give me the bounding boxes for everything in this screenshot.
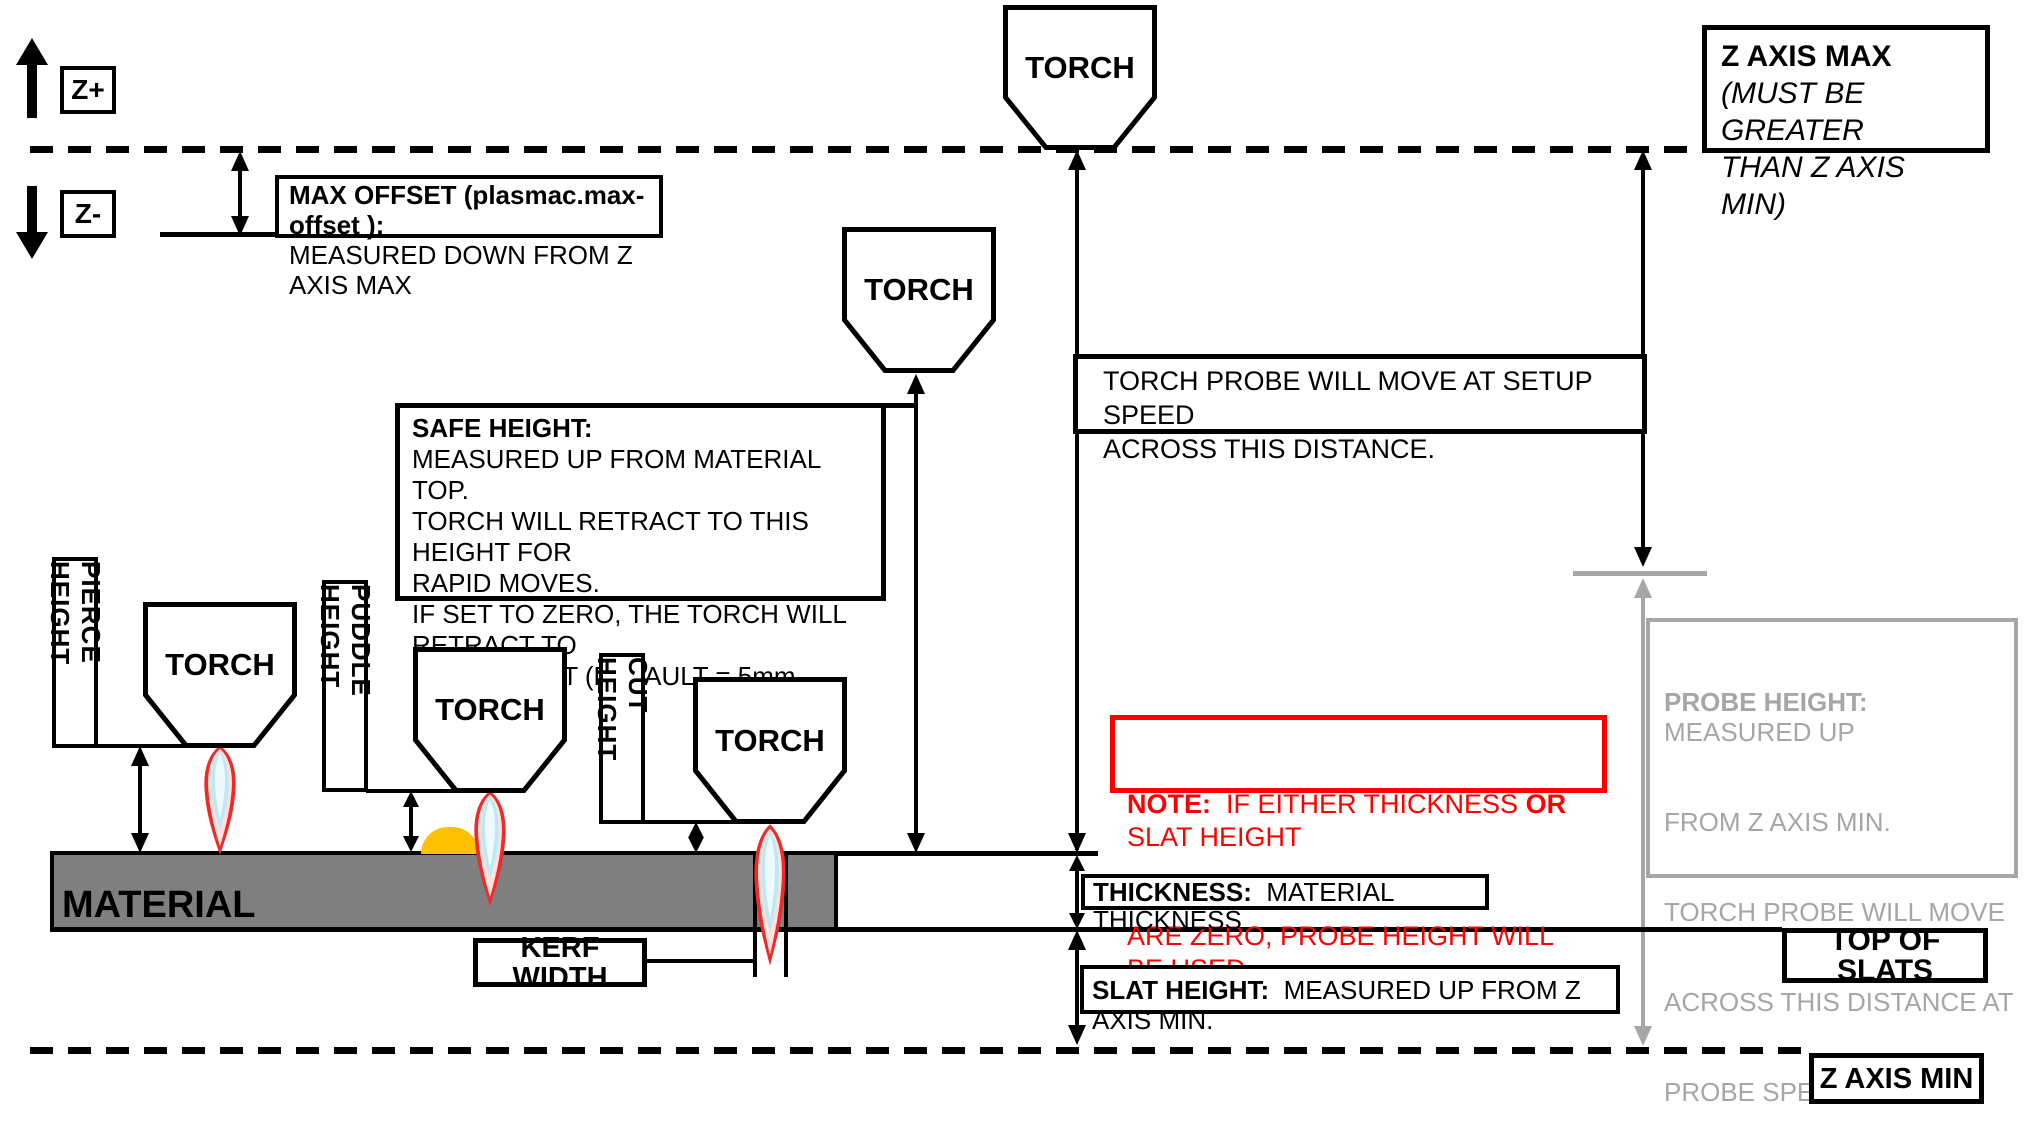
- probe-travel-down-arrow-icon: [1068, 833, 1086, 853]
- kerf-width-box: KERF WIDTH: [473, 938, 647, 987]
- kerf-width-label: KERF WIDTH: [478, 933, 642, 993]
- puddle-height-label-box: PUDDLE HEIGHT: [322, 580, 368, 792]
- z-plus-label-box: Z+: [60, 66, 116, 114]
- z-minus-arrow-stem: [27, 186, 37, 234]
- z-plus-arrow-stem: [27, 62, 37, 118]
- slat-arrow-up-icon: [1068, 930, 1086, 950]
- safe-height-line1: MEASURED UP FROM MATERIAL TOP.: [412, 444, 881, 506]
- torch-probe-box: TORCH PROBE WILL MOVE AT SETUP SPEED ACR…: [1073, 354, 1647, 434]
- puddle-arrow-up-icon: [403, 791, 419, 807]
- note-seg1: IF EITHER THICKNESS: [1211, 789, 1526, 819]
- pierce-height-label-box: PIERCE HEIGHT: [52, 557, 98, 748]
- pierce-arrow-down-icon: [131, 833, 149, 853]
- cut-height-label: CUT HEIGHT: [591, 657, 653, 820]
- z-minus-arrow-icon: [16, 232, 48, 259]
- torch-label: TORCH: [143, 647, 297, 683]
- material-top-extension-line: [838, 851, 1098, 856]
- safe-height-line2: TORCH WILL RETRACT TO THIS HEIGHT FOR: [412, 506, 881, 568]
- note-title: NOTE:: [1127, 789, 1211, 819]
- z-minus-label-box: Z-: [60, 190, 116, 238]
- zmax-to-probe-down-arrow-icon: [1634, 547, 1652, 567]
- slat-arrow-down-icon: [1068, 1025, 1086, 1045]
- safe-height-drop-down-arrow-icon: [907, 833, 925, 853]
- plasmac-heights-diagram: Z+ Z- MAX OFFSET (plasmac.max-offset ): …: [0, 0, 2038, 1145]
- probe-travel-up-arrow-icon: [1068, 150, 1086, 170]
- cut-arrow-up-icon: [688, 822, 704, 838]
- probe-height-line2: FROM Z AXIS MIN.: [1664, 807, 2014, 837]
- z-minus-label: Z-: [75, 199, 101, 229]
- slat-arrow-stem: [1075, 936, 1079, 1038]
- torch-at-cut-height: TORCH: [693, 677, 847, 824]
- torch-at-pierce-height: TORCH: [143, 602, 297, 748]
- z-axis-max-line3: THAN Z AXIS MIN): [1721, 149, 1971, 223]
- safe-height-line3: RAPID MOVES.: [412, 568, 881, 599]
- material-label: MATERIAL: [62, 884, 256, 927]
- max-offset-box: MAX OFFSET (plasmac.max-offset ): MEASUR…: [275, 175, 663, 238]
- thickness-arrow-up-icon: [1069, 855, 1085, 871]
- probe-height-box: PROBE HEIGHT: MEASURED UP FROM Z AXIS MI…: [1646, 618, 2018, 878]
- probe-height-title: PROBE HEIGHT:: [1664, 687, 1868, 717]
- z-plus-label: Z+: [71, 75, 104, 105]
- puddle-height-label: PUDDLE HEIGHT: [314, 584, 376, 788]
- probe-height-down-arrow-icon: [1634, 1026, 1652, 1046]
- torch-at-puddle-height: TORCH: [413, 647, 567, 793]
- pierce-height-label: PIERCE HEIGHT: [44, 561, 106, 744]
- pierce-flame-icon: [199, 744, 241, 856]
- puddle-arrow-down-icon: [403, 836, 419, 852]
- probe-height-line4: ACROSS THIS DISTANCE AT: [1664, 987, 2014, 1017]
- torch-probe-line2: ACROSS THIS DISTANCE.: [1103, 432, 1642, 466]
- max-offset-arrow-down-icon: [231, 216, 249, 236]
- z-plus-arrow-icon: [16, 38, 48, 65]
- z-axis-max-line2: (MUST BE GREATER: [1721, 75, 1971, 149]
- max-offset-body: MEASURED DOWN FROM Z AXIS MAX: [289, 240, 649, 300]
- zmax-to-probe-up-arrow-icon: [1634, 150, 1652, 170]
- note-line1: NOTE: IF EITHER THICKNESS OR SLAT HEIGHT: [1127, 788, 1590, 854]
- safe-height-title: SAFE HEIGHT:: [412, 413, 593, 443]
- torch-label: TORCH: [842, 272, 996, 308]
- safe-height-drop-up-arrow-icon: [907, 374, 925, 394]
- note-box: NOTE: IF EITHER THICKNESS OR SLAT HEIGHT…: [1110, 715, 1607, 793]
- pierce-arrow-up-icon: [131, 746, 149, 766]
- slat-height-title: SLAT HEIGHT:: [1092, 975, 1269, 1005]
- torch-probe-line1: TORCH PROBE WILL MOVE AT SETUP SPEED: [1103, 364, 1642, 432]
- cut-height-label-box: CUT HEIGHT: [599, 653, 645, 824]
- safe-height-drop-line: [914, 380, 918, 848]
- slat-height-box: SLAT HEIGHT: MEASURED UP FROM Z AXIS MIN…: [1080, 965, 1620, 1014]
- cut-flame-icon: [749, 822, 791, 967]
- probe-height-line: [1641, 584, 1645, 1038]
- torch-label: TORCH: [1003, 50, 1157, 86]
- probe-height-up-arrow-icon: [1634, 578, 1652, 598]
- top-of-slats-box: TOP OF SLATS: [1782, 928, 1988, 983]
- torch-label: TORCH: [413, 692, 567, 728]
- puddle-flame-icon: [469, 789, 511, 907]
- thickness-title: THICKNESS:: [1093, 877, 1252, 907]
- probe-height-line3: TORCH PROBE WILL MOVE: [1664, 897, 2014, 927]
- cut-arrow-down-icon: [688, 837, 704, 853]
- kerf-connector-line: [647, 959, 755, 963]
- safe-height-connector-line: [882, 403, 918, 408]
- safe-height-box: SAFE HEIGHT: MEASURED UP FROM MATERIAL T…: [395, 403, 886, 601]
- max-offset-arrow-up-icon: [231, 151, 249, 171]
- z-axis-min-label: Z AXIS MIN: [1820, 1064, 1974, 1094]
- z-axis-max-title: Z AXIS MAX: [1721, 40, 1892, 73]
- z-axis-max-box: Z AXIS MAX (MUST BE GREATER THAN Z AXIS …: [1702, 25, 1990, 153]
- z-axis-min-box: Z AXIS MIN: [1809, 1053, 1984, 1104]
- torch-at-safe-height: TORCH: [842, 227, 996, 373]
- probe-height-tick: [1573, 571, 1707, 576]
- torch-at-z-max: TORCH: [1003, 5, 1157, 150]
- thickness-box: THICKNESS: MATERIAL THICKNESS: [1081, 874, 1489, 910]
- probe-travel-line: [1075, 158, 1079, 850]
- max-offset-title: MAX OFFSET (plasmac.max-offset ):: [289, 180, 644, 240]
- probe-height-line1: PROBE HEIGHT: MEASURED UP: [1664, 687, 2014, 747]
- top-of-slats-label: TOP OF SLATS: [1787, 926, 1983, 986]
- z-axis-max-line: [30, 146, 1700, 153]
- note-or: OR: [1526, 789, 1567, 819]
- torch-label: TORCH: [693, 723, 847, 759]
